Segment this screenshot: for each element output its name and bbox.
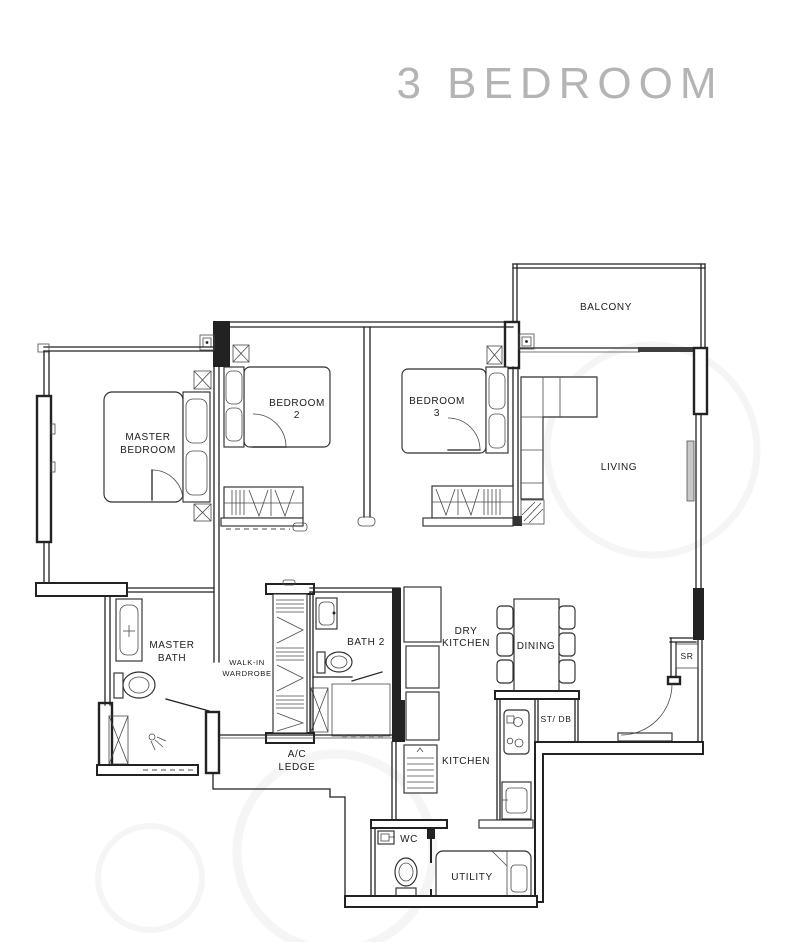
wc-toilet xyxy=(395,858,417,897)
bed2-wardrobe xyxy=(221,487,307,531)
utility: UTILITY xyxy=(345,851,537,907)
master-bath: MASTER BATH xyxy=(36,583,214,775)
bath2-sink xyxy=(316,598,337,629)
bedroom-2: BEDROOM 2 xyxy=(221,367,330,531)
floorplan-page: 3 BEDROOM BALCONY xyxy=(0,0,800,942)
label-wc: WC xyxy=(400,834,418,845)
vanity-sink xyxy=(116,599,142,661)
label-sr: SR xyxy=(680,651,693,661)
label-bedroom2-2: 2 xyxy=(294,410,300,421)
label-walk-in-1: WALK-IN xyxy=(229,658,265,667)
label-dry-kitchen-2: KITCHEN xyxy=(442,638,490,649)
sofa xyxy=(521,377,597,499)
label-dining: DINING xyxy=(517,641,556,652)
living-window xyxy=(687,441,694,501)
sr-closet: SR xyxy=(668,638,698,684)
washer-stack xyxy=(404,745,437,793)
entry-wall xyxy=(535,742,703,902)
label-ac-ledge-2: LEDGE xyxy=(279,762,316,773)
label-balcony: BALCONY xyxy=(580,302,632,313)
walk-in-wardrobe: WALK-IN WARDROBE xyxy=(222,580,314,743)
shower-head-icon xyxy=(149,734,166,750)
entry-door xyxy=(618,684,672,741)
label-master-bath-2: BATH xyxy=(158,653,186,664)
label-master-bath-1: MASTER xyxy=(149,640,194,651)
label-walk-in-2: WARDROBE xyxy=(222,669,271,678)
dry-kitchen: DRY KITCHEN xyxy=(404,587,490,740)
master-window xyxy=(37,396,51,542)
page-title: 3 BEDROOM xyxy=(396,59,723,108)
living-room: LIVING xyxy=(521,377,637,524)
dining: DINING xyxy=(497,599,575,692)
right-wall xyxy=(687,414,702,742)
wc-basin xyxy=(378,831,395,844)
plant-table xyxy=(521,500,544,524)
label-dry-kitchen-1: DRY xyxy=(455,626,478,637)
label-bath2: BATH 2 xyxy=(347,637,385,648)
bed3 xyxy=(402,367,508,453)
bedroom-3: BEDROOM 3 xyxy=(402,367,513,526)
label-master-bedroom-1: MASTER xyxy=(125,432,170,443)
kitchen-sink xyxy=(502,782,531,819)
bed3-wardrobe xyxy=(423,486,513,526)
label-bedroom3-2: 3 xyxy=(434,408,440,419)
bath-2: BATH 2 xyxy=(310,588,401,736)
floorplan-svg: 3 BEDROOM BALCONY xyxy=(0,0,800,942)
label-st-db: ST/ DB xyxy=(541,714,572,724)
label-utility: UTILITY xyxy=(451,872,492,883)
balcony: BALCONY xyxy=(513,264,705,352)
stove xyxy=(504,710,529,754)
label-living: LIVING xyxy=(601,462,637,473)
label-kitchen: KITCHEN xyxy=(442,756,490,767)
label-bedroom2-1: BEDROOM xyxy=(269,398,325,409)
label-bedroom3-1: BEDROOM xyxy=(409,396,465,407)
master-toilet xyxy=(114,672,155,698)
master-bedroom: MASTER BEDROOM xyxy=(104,392,210,502)
label-ac-ledge-1: A/C xyxy=(288,749,306,760)
bath2-toilet xyxy=(317,652,352,673)
label-master-bedroom-2: BEDROOM xyxy=(120,445,176,456)
column-symbol xyxy=(200,334,534,350)
